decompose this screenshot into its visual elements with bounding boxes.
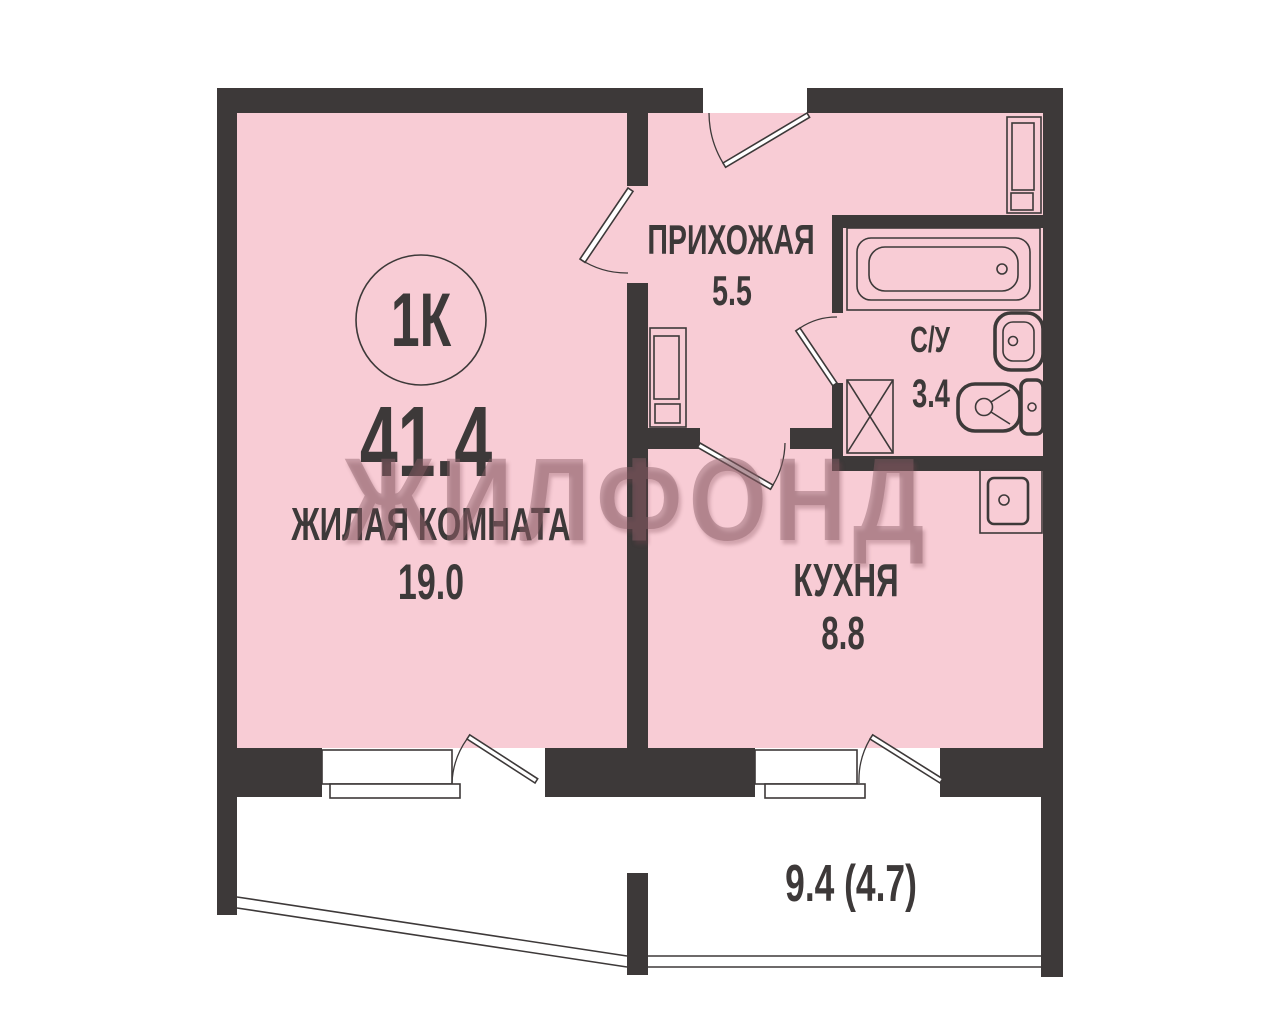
wall bbox=[627, 112, 648, 186]
wall bbox=[545, 748, 755, 797]
balcony-area-label: 9.4 (4.7) bbox=[785, 858, 917, 910]
wall bbox=[807, 88, 1063, 113]
wall bbox=[217, 88, 703, 113]
kitchen-window-icon bbox=[755, 750, 857, 784]
wall bbox=[217, 748, 322, 797]
balcony-wall bbox=[1041, 797, 1063, 977]
balcony-wall-stub bbox=[627, 873, 648, 975]
living-window-sill-icon bbox=[330, 784, 460, 798]
kitchen-window-sill-icon bbox=[765, 784, 865, 798]
floor-plan: 1К 41.4 ЖИЛАЯ КОМНАТА 19.0 ПРИХОЖАЯ 5.5 … bbox=[0, 0, 1280, 1024]
living-window-icon bbox=[322, 750, 452, 784]
bathroom-area: 3.4 bbox=[912, 374, 950, 414]
wall bbox=[940, 748, 1063, 797]
wall bbox=[832, 215, 843, 313]
room-type-badge: 1К bbox=[391, 283, 451, 359]
watermark: ЖИЛФОНД bbox=[343, 441, 931, 559]
hallway-label: ПРИХОЖАЯ bbox=[647, 219, 814, 261]
bathroom-label: С/У bbox=[910, 322, 950, 358]
kitchen-area: 8.8 bbox=[821, 610, 864, 656]
wall bbox=[1043, 88, 1063, 797]
hallway-area: 5.5 bbox=[712, 270, 752, 312]
wall bbox=[832, 215, 1043, 228]
